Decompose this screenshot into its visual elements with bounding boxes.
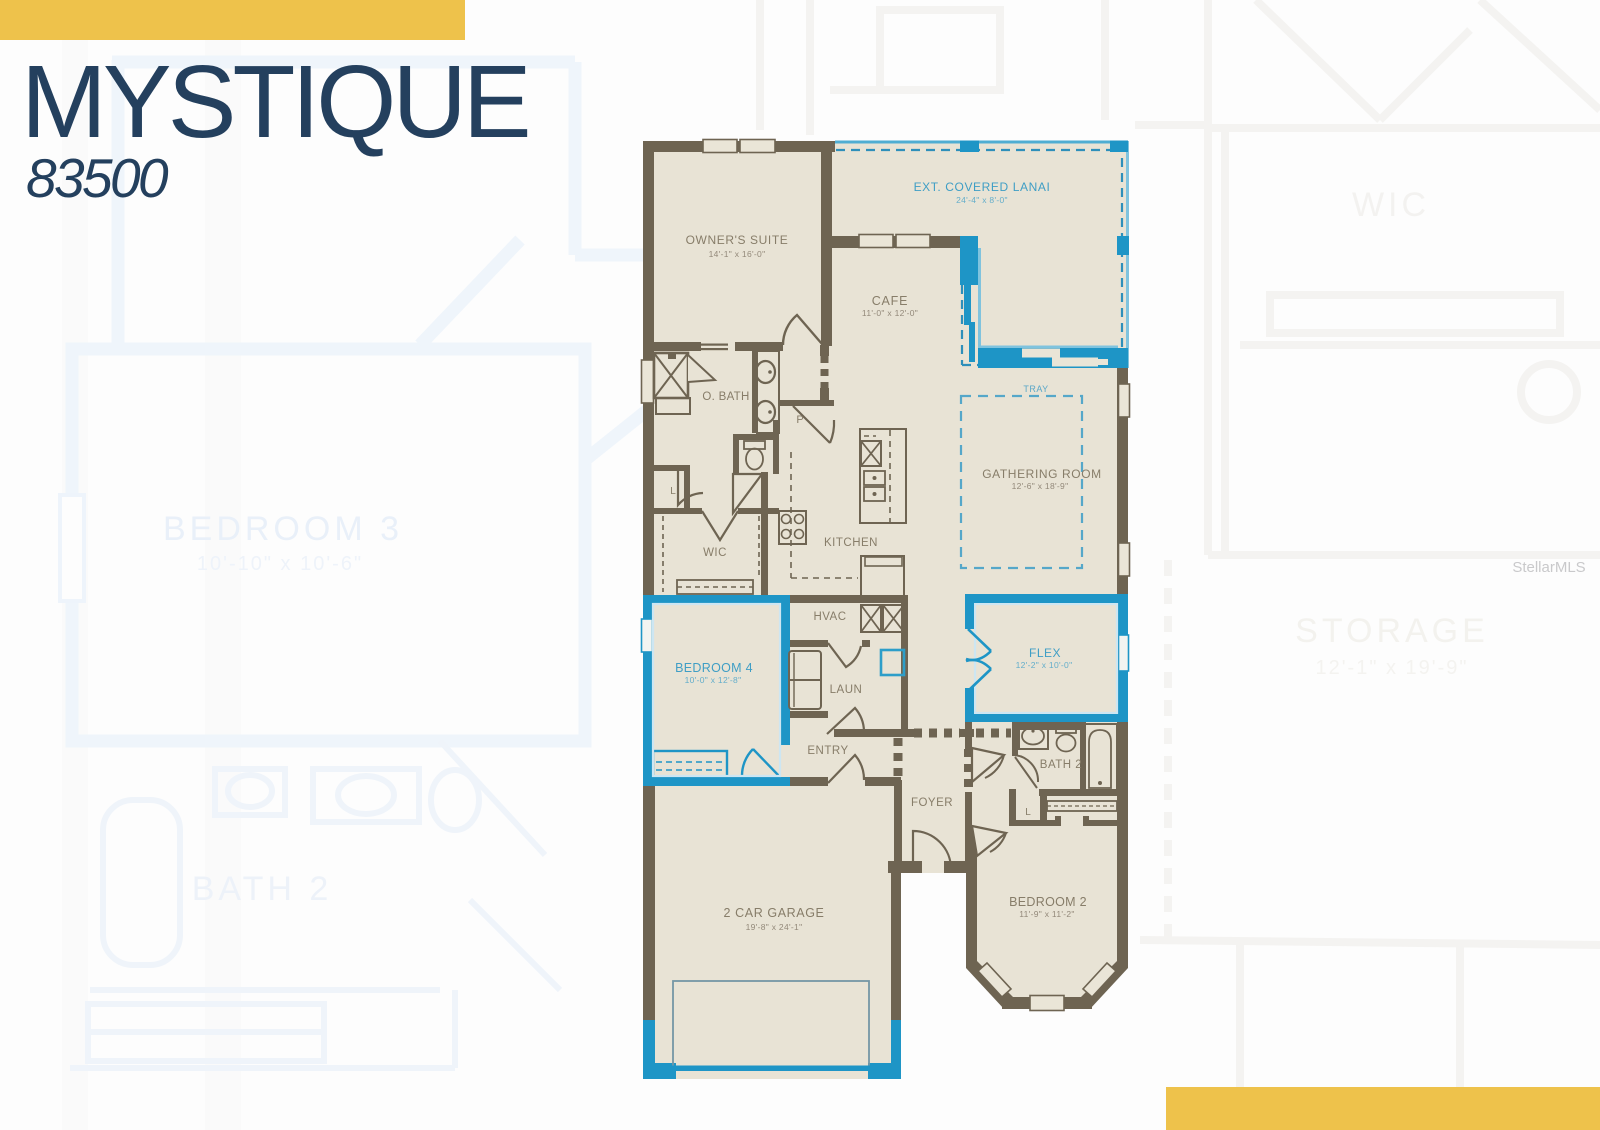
svg-text:BEDROOM 2: BEDROOM 2 (1009, 895, 1087, 909)
svg-text:BATH 2: BATH 2 (1040, 759, 1082, 771)
svg-text:LAUN: LAUN (830, 684, 863, 696)
svg-text:GATHERING ROOM: GATHERING ROOM (982, 467, 1102, 481)
svg-text:BATH 2: BATH 2 (192, 870, 333, 908)
svg-text:WIC: WIC (703, 547, 727, 559)
svg-text:P: P (796, 414, 803, 426)
svg-text:10'-10" x 10'-6": 10'-10" x 10'-6" (197, 553, 363, 575)
svg-text:HVAC: HVAC (813, 611, 846, 623)
svg-text:11'-9" x 11'-2": 11'-9" x 11'-2" (1019, 909, 1075, 919)
svg-text:24'-4" x 8'-0": 24'-4" x 8'-0" (956, 195, 1008, 205)
svg-text:O. BATH: O. BATH (702, 391, 749, 403)
svg-text:StellarMLS: StellarMLS (1512, 559, 1585, 576)
svg-text:STORAGE: STORAGE (1295, 612, 1489, 650)
svg-text:11'-0" x 12'-0": 11'-0" x 12'-0" (862, 308, 918, 318)
svg-text:12'-6" x 18'-9": 12'-6" x 18'-9" (1012, 481, 1069, 491)
svg-text:19'-8" x 24'-1": 19'-8" x 24'-1" (746, 922, 803, 932)
svg-text:10'-0" x 12'-8": 10'-0" x 12'-8" (685, 675, 742, 685)
svg-text:2 CAR GARAGE: 2 CAR GARAGE (724, 906, 825, 920)
svg-text:TRAY: TRAY (1023, 384, 1048, 394)
svg-text:OWNER'S SUITE: OWNER'S SUITE (686, 233, 789, 247)
svg-text:14'-1" x 16'-0": 14'-1" x 16'-0" (709, 249, 766, 259)
svg-text:BEDROOM 3: BEDROOM 3 (163, 510, 403, 548)
svg-text:83500: 83500 (26, 147, 169, 209)
svg-text:12'-2" x 10'-0": 12'-2" x 10'-0" (1016, 660, 1073, 670)
svg-text:L: L (670, 486, 676, 497)
svg-text:ENTRY: ENTRY (807, 745, 848, 757)
svg-text:WIC: WIC (1352, 186, 1430, 224)
svg-text:EXT. COVERED LANAI: EXT. COVERED LANAI (914, 180, 1051, 194)
svg-text:FLEX: FLEX (1029, 646, 1061, 660)
svg-text:L: L (1025, 807, 1031, 818)
svg-text:CAFE: CAFE (872, 294, 909, 308)
svg-text:MYSTIQUE: MYSTIQUE (21, 44, 528, 159)
svg-text:12'-1" x 19'-9": 12'-1" x 19'-9" (1315, 657, 1468, 679)
svg-text:FOYER: FOYER (911, 797, 953, 809)
svg-text:BEDROOM 4: BEDROOM 4 (675, 661, 753, 675)
svg-text:KITCHEN: KITCHEN (824, 537, 878, 549)
